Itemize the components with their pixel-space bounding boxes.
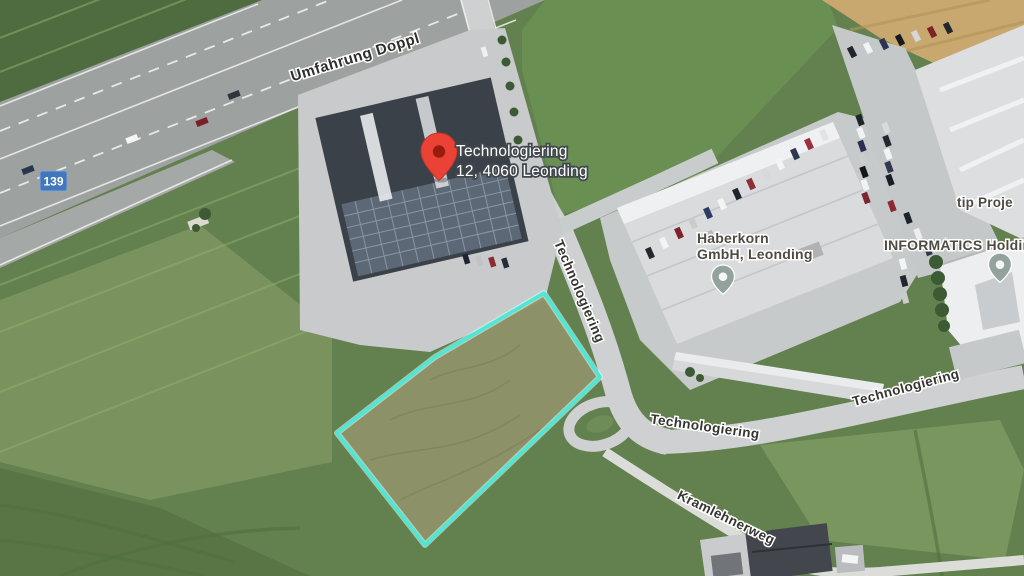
poi-tip-label[interactable]: tip Proje: [957, 195, 1013, 210]
marker-label-line2: 12, 4060 Leonding: [456, 163, 588, 180]
poi-haberkorn-label-line1[interactable]: Haberkorn: [697, 230, 769, 246]
satellite-map[interactable]: Umfahrung Doppl Technologiering Technolo…: [0, 0, 1024, 576]
poi-informatics-label[interactable]: INFORMATICS Holding: [884, 237, 1024, 253]
poi-haberkorn-label-line2[interactable]: GmbH, Leonding: [697, 246, 813, 262]
marker-label-line1: Technologiering: [456, 143, 568, 160]
map-viewport[interactable]: Umfahrung Doppl Technologiering Technolo…: [0, 0, 1024, 576]
route-badge-label: 139: [43, 175, 63, 189]
route-badge: 139: [40, 171, 67, 191]
